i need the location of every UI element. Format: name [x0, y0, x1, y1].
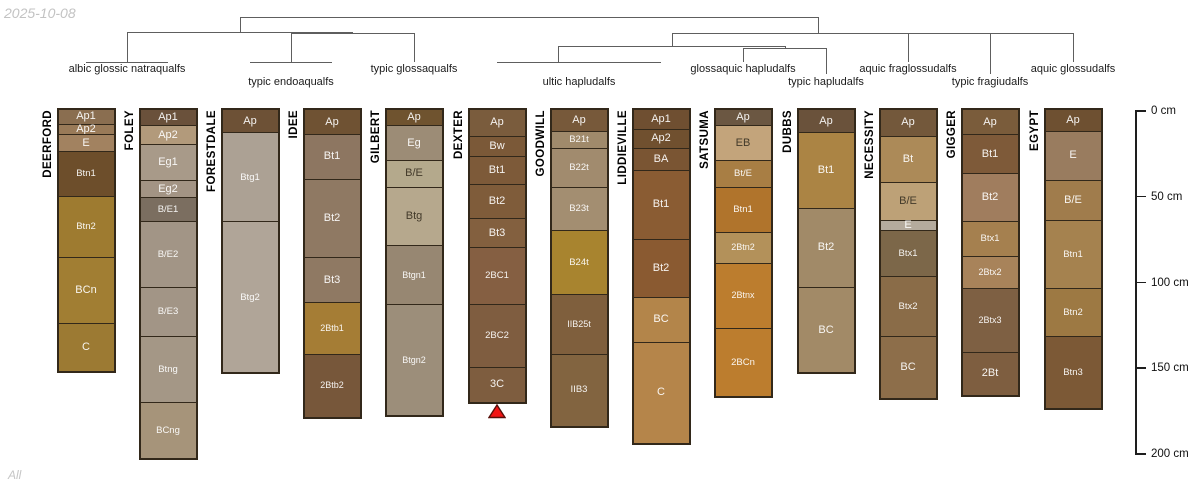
- horizon-label: Bt3: [324, 275, 341, 286]
- profile-name-label: LIDDIEVILLE: [617, 110, 629, 185]
- dendrogram-segment: [414, 33, 415, 62]
- soil-profile-column: ApEBBt/EBtn12Btn22Btnx2BCn: [716, 110, 771, 396]
- dendrogram-segment: [240, 17, 241, 32]
- horizon-label: B/E1: [158, 205, 179, 215]
- horizon-rect: Eg1: [141, 144, 196, 180]
- horizon-rect: Ap2: [59, 124, 114, 134]
- horizon-label: Ap: [983, 117, 996, 128]
- soil-profile-dendrogram-plot: 2025-10-08 albic glossic natraqualfstypi…: [0, 0, 1200, 500]
- horizon-rect: Bt2: [799, 208, 854, 287]
- horizon-label: Bt/E: [734, 169, 752, 179]
- dendrogram-segment: [240, 17, 818, 18]
- horizon-label: BC: [818, 325, 833, 336]
- horizon-rect: C: [634, 342, 689, 443]
- horizon-rect: Btn2: [59, 196, 114, 258]
- dendrogram-segment: [250, 62, 332, 63]
- horizon-label: Btx2: [898, 302, 917, 312]
- horizon-rect: 2BC1: [470, 247, 525, 304]
- horizon-label: BCn: [75, 285, 96, 296]
- horizon-label: B22t: [569, 163, 589, 173]
- horizon-label: Btn1: [76, 169, 96, 179]
- horizon-label: Btgn1: [402, 271, 426, 280]
- horizon-rect: 2BC2: [470, 304, 525, 367]
- profile-name-label: EGYPT: [1029, 110, 1041, 151]
- taxon-label: typic endoaqualfs: [248, 76, 334, 88]
- soil-profile-column: Ap1Ap2Eg1Eg2B/E1B/E2B/E3BtngBCng: [141, 110, 196, 458]
- horizon-label: Btgn2: [402, 356, 426, 365]
- horizon-label: 2Btnx: [731, 291, 754, 300]
- horizon-label: BC: [653, 314, 668, 325]
- horizon-label: B/E: [899, 196, 917, 207]
- horizon-label: 2BC2: [485, 331, 509, 341]
- horizon-label: 2BCn: [731, 358, 755, 368]
- depth-tick: [1135, 367, 1146, 369]
- horizon-label: Btx1: [898, 249, 917, 259]
- horizon-label: Ap1: [76, 111, 96, 122]
- horizon-label: Btng: [158, 365, 178, 375]
- horizon-rect: Bw: [470, 136, 525, 157]
- horizon-label: Bt2: [982, 192, 999, 203]
- horizon-rect: Btg1: [223, 132, 278, 221]
- dendrogram-segment: [352, 32, 353, 33]
- dendrogram-segment: [1073, 33, 1074, 62]
- horizon-label: IIB25t: [567, 320, 591, 329]
- horizon-rect: B/E: [1046, 180, 1101, 219]
- horizon-rect: Ap: [552, 110, 607, 131]
- horizon-label: Btn2: [1063, 308, 1083, 318]
- horizon-label: EB: [736, 138, 751, 149]
- horizon-rect: 2Btx3: [963, 288, 1018, 351]
- soil-profile-column: ApEgB/EBtgBtgn1Btgn2: [387, 110, 442, 415]
- horizon-label: Btx1: [980, 234, 999, 244]
- horizon-rect: Bt1: [799, 132, 854, 207]
- horizon-rect: Ap1: [59, 110, 114, 124]
- horizon-label: Bw: [489, 141, 504, 152]
- horizon-rect: B/E3: [141, 287, 196, 337]
- dendrogram-segment: [743, 48, 826, 49]
- profile-name-label: NECESSITY: [864, 110, 876, 179]
- dendrogram-segment: [497, 62, 661, 63]
- profile-name-label: FOLEY: [124, 110, 136, 150]
- horizon-label: Bt2: [818, 242, 835, 253]
- soil-profile-column: ApBt1Bt2Btx12Btx22Btx32Bt: [963, 110, 1018, 395]
- horizon-rect: Bt: [881, 136, 936, 182]
- horizon-label: 3C: [490, 379, 504, 390]
- soil-profile-column: ApBtB/EEBtx1Btx2BC: [881, 110, 936, 398]
- horizon-rect: Bt3: [470, 218, 525, 247]
- horizon-rect: B21t: [552, 131, 607, 148]
- horizon-label: B24t: [569, 258, 589, 268]
- horizon-label: Bt2: [653, 263, 670, 274]
- dendrogram-segment: [558, 46, 559, 62]
- horizon-rect: Btx1: [963, 221, 1018, 255]
- soil-profile-column: ApBt1Bt2Bt32Btb12Btb2: [305, 110, 360, 417]
- depth-tick: [1135, 110, 1146, 112]
- horizon-label: Btn1: [733, 205, 753, 215]
- horizon-rect: Btn2: [1046, 288, 1101, 336]
- horizon-label: 2Btb2: [320, 381, 344, 390]
- horizon-label: Bt1: [653, 199, 670, 210]
- horizon-rect: 2Btb1: [305, 302, 360, 353]
- horizon-rect: Btx2: [881, 276, 936, 336]
- horizon-label: Ap: [243, 116, 256, 127]
- profile-name-label: DEXTER: [453, 110, 465, 159]
- horizon-label: B23t: [569, 204, 589, 214]
- horizon-rect: Btn3: [1046, 336, 1101, 408]
- soil-profile-column: ApBtg1Btg2: [223, 110, 278, 372]
- taxon-label: glossaquic hapludalfs: [690, 63, 795, 75]
- soil-profile-column: Ap1Ap2BABt1Bt2BCC: [634, 110, 689, 443]
- dendrogram-segment: [672, 33, 1073, 34]
- footer-label: All: [8, 468, 21, 482]
- horizon-label: Btn2: [76, 222, 96, 232]
- horizon-rect: BC: [799, 287, 854, 373]
- horizon-rect: 2Btnx: [716, 263, 771, 328]
- horizon-label: BC: [900, 362, 915, 373]
- horizon-rect: Ap: [305, 110, 360, 134]
- horizon-label: Ap: [407, 112, 420, 123]
- horizon-label: C: [82, 342, 90, 353]
- horizon-rect: Ap: [716, 110, 771, 125]
- horizon-rect: EB: [716, 125, 771, 159]
- horizon-rect: C: [59, 323, 114, 371]
- horizon-rect: Bt2: [305, 179, 360, 258]
- horizon-label: IIB3: [571, 385, 588, 395]
- horizon-label: 2Btn2: [731, 243, 755, 252]
- taxon-label: ultic hapludalfs: [543, 76, 616, 88]
- horizon-label: B21t: [569, 135, 589, 145]
- horizon-rect: BCn: [59, 257, 114, 322]
- horizon-rect: 3C: [470, 367, 525, 401]
- horizon-rect: BC: [634, 297, 689, 342]
- dendrogram-segment: [818, 17, 819, 33]
- horizon-label: E: [82, 138, 89, 149]
- horizon-label: C: [657, 387, 665, 398]
- horizon-rect: 2Btb2: [305, 354, 360, 417]
- soil-profile-column: ApB21tB22tB23tB24tIIB25tIIB3: [552, 110, 607, 426]
- profile-name-label: GIGGER: [946, 110, 958, 158]
- horizon-rect: Bt2: [963, 173, 1018, 221]
- horizon-label: E: [1069, 150, 1076, 161]
- horizon-rect: IIB25t: [552, 294, 607, 354]
- horizon-label: Bt3: [489, 228, 506, 239]
- horizon-rect: E: [881, 220, 936, 230]
- horizon-rect: Ap: [223, 110, 278, 132]
- date-label: 2025-10-08: [4, 5, 76, 21]
- horizon-rect: E: [59, 134, 114, 151]
- horizon-rect: Ap: [470, 110, 525, 136]
- horizon-rect: Bt3: [305, 257, 360, 302]
- taxon-label: typic fragiudalfs: [952, 76, 1028, 88]
- horizon-label: BA: [654, 154, 669, 165]
- horizon-rect: Btn1: [59, 151, 114, 196]
- horizon-label: Ap1: [158, 112, 178, 123]
- horizon-label: 2BC1: [485, 271, 509, 281]
- marker-triangle-icon: [488, 404, 506, 424]
- profile-name-label: GILBERT: [370, 110, 382, 163]
- horizon-rect: Ap2: [141, 125, 196, 144]
- horizon-label: Ap: [819, 116, 832, 127]
- horizon-label: Eg1: [158, 157, 178, 168]
- dendrogram-segment: [743, 48, 744, 62]
- horizon-label: Ap: [1066, 115, 1079, 126]
- horizon-label: Btg: [406, 211, 423, 222]
- horizon-rect: Bt2: [634, 239, 689, 297]
- dendrogram-segment: [826, 48, 827, 74]
- dendrogram-segment: [127, 32, 352, 33]
- horizon-rect: B/E: [387, 160, 442, 187]
- horizon-label: 2Btx2: [978, 268, 1001, 277]
- horizon-rect: Ap1: [634, 110, 689, 129]
- profile-name-label: DEERFORD: [42, 110, 54, 178]
- horizon-rect: Ap2: [634, 129, 689, 148]
- horizon-rect: IIB3: [552, 354, 607, 426]
- horizon-label: 2Btb1: [320, 324, 344, 333]
- horizon-rect: BA: [634, 148, 689, 170]
- taxon-label: aquic fraglossudalfs: [859, 63, 956, 75]
- depth-tick-label: 0 cm: [1151, 105, 1176, 117]
- horizon-rect: B22t: [552, 148, 607, 187]
- horizon-label: Eg2: [158, 184, 178, 195]
- depth-tick-label: 200 cm: [1151, 448, 1189, 460]
- depth-tick: [1135, 453, 1146, 455]
- horizon-label: B/E: [1064, 195, 1082, 206]
- depth-tick: [1135, 282, 1146, 284]
- horizon-rect: Ap: [799, 110, 854, 132]
- horizon-rect: BC: [881, 336, 936, 398]
- soil-profile-column: ApBwBt1Bt2Bt32BC12BC23C: [470, 110, 525, 402]
- depth-tick-label: 150 cm: [1151, 362, 1189, 374]
- soil-profile-column: ApEB/EBtn1Btn2Btn3: [1046, 110, 1101, 408]
- horizon-label: BCng: [156, 426, 180, 436]
- profile-name-label: SATSUMA: [699, 110, 711, 169]
- horizon-label: B/E: [405, 168, 423, 179]
- horizon-label: 2Bt: [982, 368, 999, 379]
- horizon-rect: B24t: [552, 230, 607, 293]
- taxon-label: albic glossic natraqualfs: [69, 63, 186, 75]
- horizon-label: B/E3: [158, 307, 179, 317]
- horizon-rect: Btg: [387, 187, 442, 245]
- horizon-rect: Ap: [387, 110, 442, 125]
- horizon-label: Bt2: [324, 213, 341, 224]
- horizon-label: B/E2: [158, 250, 179, 260]
- horizon-rect: Btg2: [223, 221, 278, 372]
- horizon-label: 2Btx3: [978, 316, 1001, 325]
- horizon-rect: B/E2: [141, 221, 196, 286]
- horizon-rect: Btn1: [716, 187, 771, 232]
- soil-profile-column: ApBt1Bt2BC: [799, 110, 854, 372]
- horizon-label: Bt1: [489, 165, 506, 176]
- horizon-rect: 2Bt: [963, 352, 1018, 395]
- horizon-rect: 2Btx2: [963, 256, 1018, 289]
- horizon-label: Btg2: [240, 293, 260, 303]
- horizon-rect: B/E: [881, 182, 936, 220]
- dendrogram-segment: [127, 32, 128, 62]
- profile-name-label: DUBBS: [782, 110, 794, 153]
- horizon-label: Bt1: [982, 149, 999, 160]
- horizon-label: Ap: [325, 117, 338, 128]
- dendrogram-segment: [990, 33, 991, 74]
- horizon-rect: E: [1046, 131, 1101, 181]
- horizon-label: Ap: [736, 112, 749, 123]
- profile-name-label: IDEE: [288, 110, 300, 138]
- soil-profile-column: Ap1Ap2EBtn1Btn2BCnC: [59, 110, 114, 371]
- taxon-label: typic glossaqualfs: [371, 63, 458, 75]
- taxon-label: aquic glossudalfs: [1031, 63, 1115, 75]
- dendrogram-segment: [291, 33, 292, 62]
- horizon-label: Bt1: [818, 165, 835, 176]
- horizon-rect: Ap: [963, 110, 1018, 134]
- horizon-rect: Ap: [1046, 110, 1101, 131]
- dendrogram-segment: [672, 33, 673, 46]
- horizon-rect: 2BCn: [716, 328, 771, 397]
- horizon-rect: Btgn1: [387, 245, 442, 303]
- horizon-label: Ap2: [651, 133, 671, 144]
- horizon-rect: BCng: [141, 402, 196, 459]
- horizon-label: Eg: [407, 138, 420, 149]
- horizon-rect: Bt1: [963, 134, 1018, 173]
- horizon-rect: Eg: [387, 125, 442, 159]
- horizon-rect: Ap: [881, 110, 936, 136]
- depth-tick-label: 50 cm: [1151, 191, 1182, 203]
- horizon-label: Bt: [903, 154, 913, 165]
- horizon-rect: Bt/E: [716, 160, 771, 187]
- horizon-label: Btg1: [240, 173, 260, 183]
- horizon-rect: B/E1: [141, 197, 196, 221]
- depth-tick: [1135, 196, 1146, 198]
- horizon-rect: Ap1: [141, 110, 196, 125]
- horizon-label: Btn1: [1063, 250, 1083, 260]
- horizon-rect: Btgn2: [387, 304, 442, 415]
- horizon-rect: B23t: [552, 187, 607, 230]
- horizon-label: Ap: [572, 115, 585, 126]
- horizon-label: Ap1: [651, 114, 671, 125]
- horizon-rect: Btn1: [1046, 220, 1101, 289]
- dendrogram-segment: [908, 33, 909, 62]
- horizon-rect: Btx1: [881, 230, 936, 276]
- horizon-rect: Btng: [141, 336, 196, 401]
- horizon-rect: Bt1: [634, 170, 689, 239]
- depth-tick-label: 100 cm: [1151, 277, 1189, 289]
- horizon-rect: Bt1: [305, 134, 360, 179]
- profile-name-label: FORESTDALE: [206, 110, 218, 192]
- horizon-label: Btn3: [1063, 368, 1083, 378]
- taxon-label: typic hapludalfs: [788, 76, 864, 88]
- horizon-label: Ap: [901, 117, 914, 128]
- horizon-rect: Bt2: [470, 184, 525, 218]
- profile-name-label: GOODWILL: [535, 110, 547, 176]
- horizon-label: Bt1: [324, 151, 341, 162]
- horizon-label: Bt2: [489, 196, 506, 207]
- horizon-rect: Bt1: [470, 156, 525, 183]
- horizon-rect: 2Btn2: [716, 232, 771, 263]
- horizon-rect: Eg2: [141, 180, 196, 197]
- horizon-label: Ap: [490, 117, 503, 128]
- horizon-label: Ap2: [158, 130, 178, 141]
